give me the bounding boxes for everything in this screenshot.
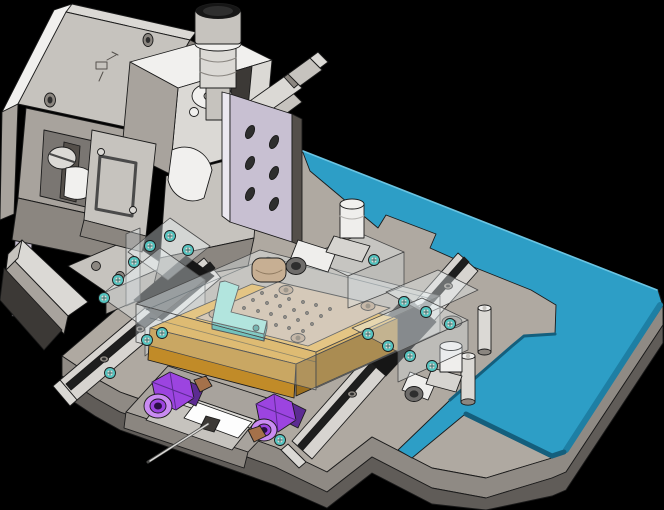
lavender-face	[230, 94, 292, 242]
cad-render-viewport	[0, 0, 664, 510]
lavender-plate[interactable]	[222, 92, 302, 246]
lavender-left-edge	[222, 92, 230, 222]
tan-insert-boss[interactable]	[252, 258, 286, 282]
standoff-pin-1[interactable]	[478, 305, 491, 355]
cad-scene	[0, 0, 664, 510]
gasket-plate[interactable]	[80, 130, 156, 252]
standoff-pin-2[interactable]	[461, 353, 475, 405]
lavender-shadow-strip	[292, 114, 302, 246]
